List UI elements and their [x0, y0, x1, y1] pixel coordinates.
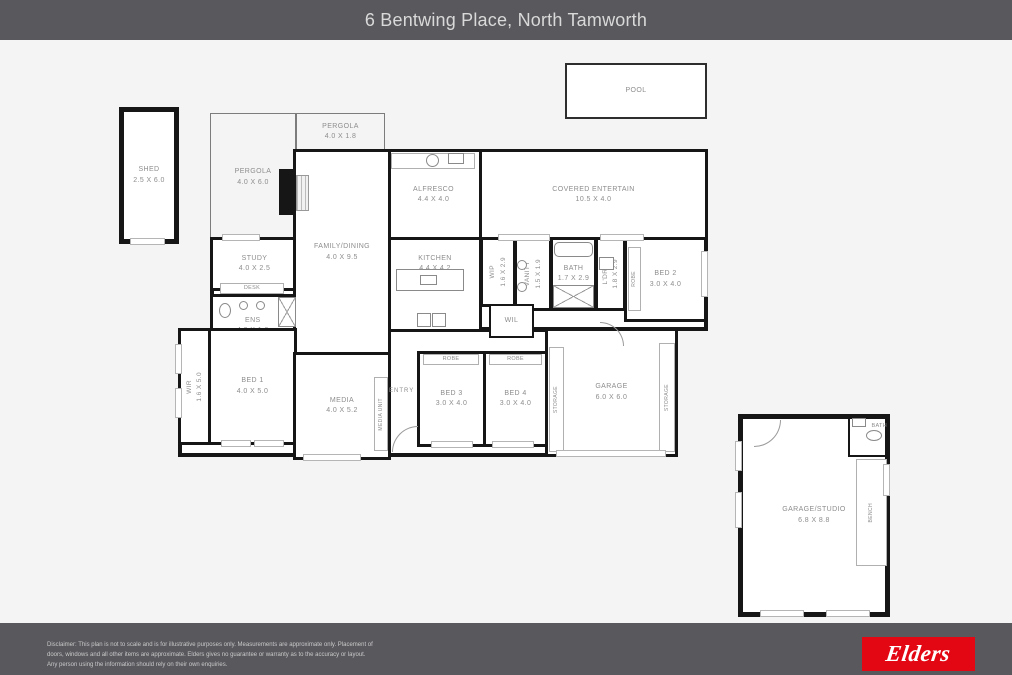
basin-icon — [256, 301, 265, 310]
room-label: PERGOLA4.0 X 6.0 — [235, 167, 272, 187]
room-label: SHED2.5 X 6.0 — [133, 165, 165, 185]
room-vanity: VANITY1.5 X 1.9 — [514, 237, 552, 311]
room-label: STUDY4.0 X 2.5 — [239, 254, 271, 274]
room-label: WIP1.6 X 2.9 — [488, 240, 507, 304]
room-bed3: BED 33.0 X 4.0 — [417, 351, 486, 447]
room-pergola-top: PERGOLA4.0 X 1.8 — [296, 113, 385, 151]
opening — [498, 234, 550, 241]
room-label: VANITY1.5 X 1.9 — [523, 240, 542, 308]
oven-icon — [417, 313, 431, 327]
window — [883, 464, 890, 496]
window — [760, 610, 804, 617]
opening — [600, 234, 644, 241]
door-opening — [130, 238, 165, 245]
window — [431, 441, 473, 448]
desk: DESK — [220, 283, 284, 294]
robe-bed3: ROBE — [423, 354, 479, 365]
room-label: L'DRY1.8 X 2.9 — [601, 240, 620, 308]
window — [175, 388, 182, 418]
garage-door-opening — [556, 450, 666, 457]
room-label: BED 43.0 X 4.0 — [500, 389, 532, 409]
room-label: MEDIA4.0 X 5.2 — [326, 396, 358, 416]
room-wil: WIL — [489, 304, 534, 338]
window — [701, 251, 708, 297]
fireplace-hearth — [296, 175, 309, 211]
window — [254, 440, 284, 447]
window — [826, 610, 870, 617]
room-label: COVERED ENTERTAIN10.5 X 4.0 — [552, 185, 634, 205]
cooktop-icon — [432, 313, 446, 327]
shower-icon — [278, 297, 296, 327]
room-label: ALFRESCO4.4 X 4.0 — [413, 185, 454, 205]
outdoor-sink-icon — [448, 153, 464, 164]
robe-label: ROBE — [507, 356, 524, 364]
room-label: WIL — [505, 316, 519, 326]
window — [175, 344, 182, 374]
media-unit: MEDIA UNIT — [374, 377, 388, 451]
window — [735, 441, 742, 471]
room-label: FAMILY/DINING4.0 X 9.5 — [314, 242, 370, 262]
room-covered-entertain: COVERED ENTERTAIN10.5 X 4.0 — [479, 149, 708, 241]
room-wir: WIR1.6 X 5.0 — [178, 328, 211, 445]
basin-icon — [517, 282, 527, 292]
room-laundry: L'DRY1.8 X 2.9 — [595, 237, 626, 311]
room-pool: POOL — [565, 63, 707, 119]
robe-bed4: ROBE — [489, 354, 542, 365]
fireplace-icon — [279, 169, 295, 215]
room-label: GARAGE6.0 X 6.0 — [595, 382, 627, 402]
storage-label: STORAGE — [553, 386, 560, 413]
room-label: PERGOLA4.0 X 1.8 — [322, 122, 359, 142]
disclaimer-line: Disclaimer: This plan is not to scale an… — [47, 641, 373, 651]
disclaimer-text: Disclaimer: This plan is not to scale an… — [47, 641, 373, 671]
room-label: POOL — [625, 86, 646, 96]
basin-icon — [517, 260, 527, 270]
media-unit-label: MEDIA UNIT — [378, 398, 385, 431]
room-label: BATH1.7 X 2.9 — [558, 264, 590, 284]
robe-label: ROBE — [631, 271, 638, 287]
window — [735, 492, 742, 528]
window — [221, 440, 251, 447]
room-label: GARAGE/STUDIO6.8 X 8.8 — [782, 505, 846, 525]
room-shed: SHED2.5 X 6.0 — [119, 107, 179, 244]
window — [222, 234, 260, 241]
elders-logo: Elders — [862, 637, 975, 671]
storage-right: STORAGE — [659, 343, 675, 452]
room-label: BED 14.0 X 5.0 — [237, 376, 269, 396]
bathtub-icon — [554, 242, 593, 257]
disclaimer-line: doors, windows and all other items are a… — [47, 651, 373, 661]
header-bar: 6 Bentwing Place, North Tamworth — [0, 0, 1012, 40]
elders-logo-text: Elders — [885, 641, 953, 667]
floor-plan-page: 6 Bentwing Place, North Tamworth POOL SH… — [0, 0, 1012, 675]
kitchen-sink-icon — [420, 275, 437, 285]
storage-left: STORAGE — [549, 347, 564, 452]
storage-label: STORAGE — [664, 384, 671, 411]
robe-bed2: ROBE — [628, 247, 641, 311]
washer-icon — [599, 257, 614, 270]
toilet-icon — [219, 303, 231, 318]
robe-label: ROBE — [443, 356, 460, 364]
basin-icon — [239, 301, 248, 310]
room-label: BED 23.0 X 4.0 — [650, 269, 682, 289]
room-label: WIR1.6 X 5.0 — [185, 331, 204, 442]
bench-label: BENCH — [868, 503, 875, 523]
room-bed4: BED 43.0 X 4.0 — [483, 351, 548, 447]
window — [492, 441, 534, 448]
room-bed1: BED 14.0 X 5.0 — [208, 328, 297, 445]
bbq-icon — [426, 154, 439, 167]
shower-icon — [553, 285, 594, 308]
page-title: 6 Bentwing Place, North Tamworth — [365, 10, 647, 31]
toilet-icon — [866, 430, 882, 441]
window — [303, 454, 361, 461]
basin-icon — [852, 418, 866, 427]
disclaimer-line: Any person using the information should … — [47, 661, 373, 671]
room-wip: WIP1.6 X 2.9 — [480, 237, 516, 307]
desk-label: DESK — [244, 285, 260, 293]
room-label: BED 33.0 X 4.0 — [436, 389, 468, 409]
entry-label: ENTRY — [389, 388, 414, 394]
